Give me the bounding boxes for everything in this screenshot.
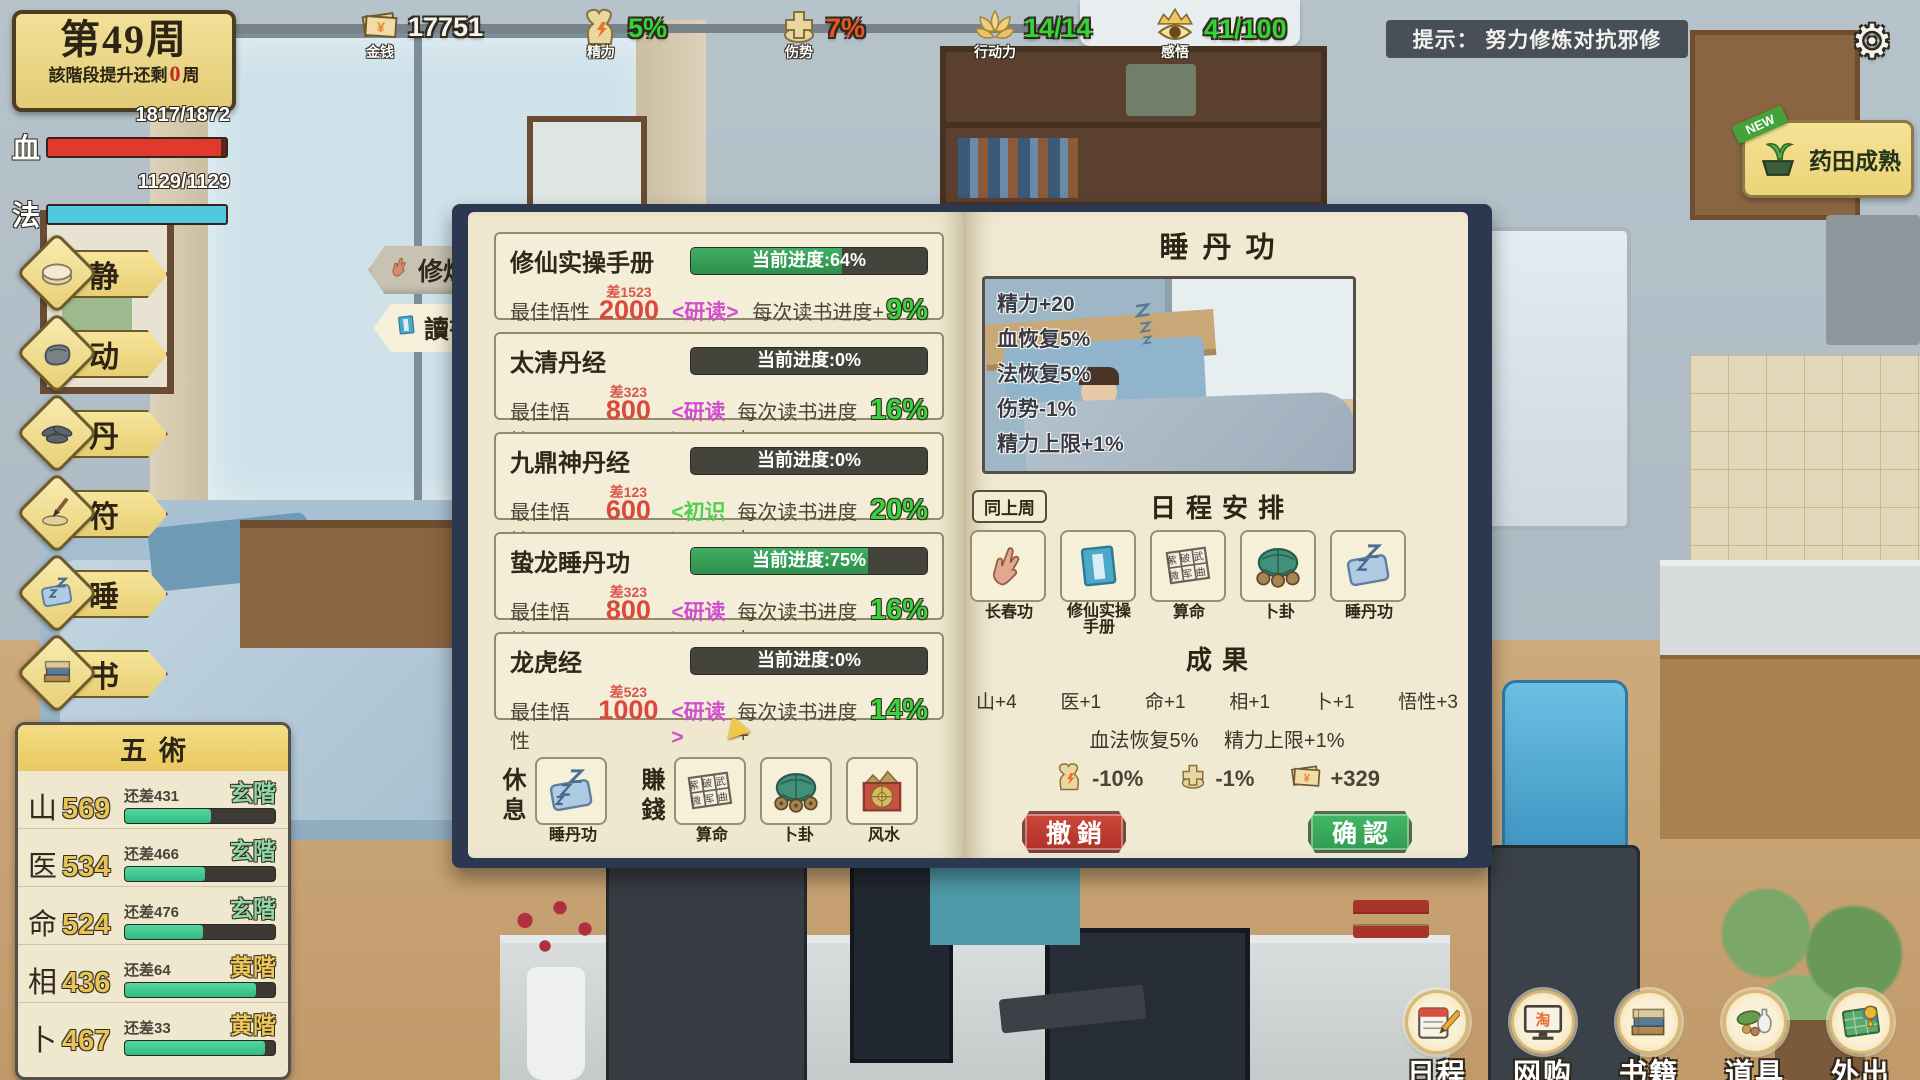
schedule-slot[interactable]: 紫破武微军曲 算命 [1150, 530, 1228, 636]
results-recovery-line: 血法恢复5% 精力上限+1% [966, 724, 1468, 753]
five-arts-bar [124, 808, 276, 824]
bg-water-bottle [1502, 680, 1628, 854]
five-arts-row-yi: 医 534 还差466 玄階 [18, 829, 288, 887]
nav-items[interactable]: 道具 [1716, 990, 1794, 1080]
aptitude-diff: 差123 [610, 482, 647, 502]
five-arts-row-bu: 卜 467 还差33 黄階 [18, 1003, 288, 1060]
five-arts-bar [124, 1040, 276, 1056]
activity-title: 睡丹功 [966, 224, 1468, 266]
bg-hood [1826, 215, 1920, 345]
bg-chair [930, 855, 1080, 945]
herb-icon [16, 392, 98, 474]
results-title: 成果 [966, 640, 1468, 677]
gain-value: 16% [870, 599, 928, 621]
book-icon [1060, 530, 1136, 602]
sidebar-item-dan[interactable]: 丹 [24, 402, 174, 460]
book-progress-bar: 当前进度:0% [690, 447, 928, 475]
books-icon [1617, 990, 1681, 1054]
aptitude-label: 最佳悟性 [510, 696, 589, 754]
read-mode-toggle[interactable]: <研读> [672, 296, 739, 326]
nav-schedule[interactable]: 日程 [1398, 990, 1476, 1080]
sidebar-item-fu[interactable]: 符 [24, 482, 174, 540]
pillow-icon [1330, 530, 1406, 602]
mp-value: 1129/1129 [54, 171, 230, 194]
compass-icon [846, 757, 918, 825]
gain-value: 9% [886, 299, 928, 321]
schedule-slot[interactable]: 卜卦 [1240, 530, 1318, 636]
schedule-slot[interactable]: 睡丹功 [1330, 530, 1408, 636]
resource-action: 行动力 14/14 [972, 6, 1092, 51]
gain-value: 14% [870, 699, 928, 721]
resource-money: ¥ 金钱 17751 [358, 6, 483, 49]
rest-label: 休息 [494, 767, 529, 827]
week-remaining: 該階段提升还剩0周 [16, 64, 232, 86]
book-entry[interactable]: 修仙实操手册 当前进度:64% 最佳悟性 差1523 2000 <研读> 每次读… [494, 232, 944, 320]
game-screen: 第49周 該階段提升还剩0周 ¥ 金钱 17751 精力 5% 伤势 7% 行动… [0, 0, 1920, 1080]
settings-button[interactable]: ⚙ [1843, 12, 1901, 70]
vitals-panel: 1817/1872 血 1129/1129 法 [12, 104, 242, 234]
activity-effects: 精力+20 血恢复5% 法恢复5% 伤势-1% 精力上限+1% [997, 287, 1124, 462]
energy-icon: 精力 [580, 6, 622, 51]
fortune-paper-icon: 紫破武微军曲 [674, 757, 746, 825]
bg-fridge [1481, 227, 1631, 530]
nav-go-out[interactable]: 外出 [1822, 990, 1900, 1080]
cost-energy: -10% [1054, 761, 1143, 797]
sidebar-item-jing[interactable]: 静 [24, 242, 174, 300]
farm-icon [1755, 135, 1801, 184]
resource-energy: 精力 5% [580, 6, 667, 51]
book-progress-bar: 当前进度:0% [690, 647, 928, 675]
sidebar-item-shui[interactable]: 睡 [24, 562, 174, 620]
book-progress-bar: 当前进度:75% [690, 547, 928, 575]
money-icon: ¥ [1288, 761, 1324, 797]
five-arts-bar [124, 924, 276, 940]
schedule-slot[interactable]: 修仙实操手册 [1060, 530, 1138, 636]
book-entry[interactable]: 龙虎经 当前进度:0% 最佳悟性 差523 1000 <研读> 每次读书进度+ … [494, 632, 944, 720]
bg-flowers [505, 895, 605, 980]
earn-label: 賺錢 [633, 767, 668, 827]
week-plaque: 第49周 該階段提升还剩0周 [12, 10, 236, 112]
book-right-page: 睡丹功 精力+20 血恢复5% 法恢复5% 伤势-1% 精力上限+1% [966, 212, 1468, 858]
bg-counter [1660, 560, 1920, 661]
map-icon [1829, 990, 1893, 1054]
side-menu: 静 动 丹 符 睡 书 [24, 242, 174, 700]
insight-value: 41/100 [1204, 14, 1287, 45]
undo-button[interactable]: 撤銷 [1022, 811, 1126, 853]
bottom-nav: 日程 淘 网购 书籍 道具 外出 [1398, 990, 1900, 1080]
svg-text:淘: 淘 [1536, 1011, 1551, 1029]
action-icon: 行动力 [972, 6, 1018, 51]
action-value: 14/14 [1024, 13, 1092, 44]
book-entry[interactable]: 九鼎神丹经 当前进度:0% 最佳悟性 差123 600 <初识> 每次读书进度+… [494, 432, 944, 520]
mp-label: 法 [12, 194, 40, 234]
five-arts-row-shan: 山 569 还差431 玄階 [18, 771, 288, 829]
schedule-header: 同上周 日程安排 [966, 488, 1468, 522]
same-as-last-week-button[interactable]: 同上周 [972, 490, 1047, 523]
book-progress-bar: 当前进度:64% [690, 247, 928, 275]
five-arts-row-ming: 命 524 还差476 玄階 [18, 887, 288, 945]
book-panel: 修仙实操手册 当前进度:64% 最佳悟性 差1523 2000 <研读> 每次读… [452, 204, 1492, 868]
gain-label: 每次读书进度+ [737, 696, 868, 748]
five-arts-row-xiang: 相 436 还差64 黄階 [18, 945, 288, 1003]
money-label: 金钱 [366, 42, 394, 62]
five-arts-panel: 五術 山 569 还差431 玄階 医 534 还差466 玄階 命 524 [15, 722, 291, 1080]
injury-icon: 伤势 [778, 6, 820, 51]
hand-icon [388, 255, 412, 286]
gain-value: 16% [870, 399, 928, 421]
book-entry[interactable]: 太清丹经 当前进度:0% 最佳悟性 差323 800 <研读> 每次读书进度+ … [494, 332, 944, 420]
bg-kitchen-tiles [1690, 355, 1920, 565]
hp-bar [46, 137, 228, 158]
tip-text: 提示： 努力修炼对抗邪修 [1413, 24, 1662, 54]
injury-label: 伤势 [785, 42, 813, 62]
cost-money: ¥ +329 [1288, 761, 1380, 797]
pillow-icon [535, 757, 607, 825]
fortune-paper-icon: 紫破武微军曲 [1150, 530, 1226, 602]
gain-value: 20% [870, 499, 928, 521]
bg-vase [527, 967, 585, 1080]
hp-label: 血 [12, 127, 40, 167]
week-title: 第49周 [16, 16, 232, 64]
items-icon [1723, 990, 1787, 1054]
action-card-sleep[interactable]: 睡丹功 [535, 757, 611, 844]
bg-cabinet [1660, 655, 1920, 839]
nav-books[interactable]: 书籍 [1610, 990, 1688, 1080]
book-list: 修仙实操手册 当前进度:64% 最佳悟性 差1523 2000 <研读> 每次读… [494, 232, 944, 720]
five-arts-title: 五術 [18, 725, 288, 771]
shop-monitor-icon: 淘 [1511, 990, 1575, 1054]
activity-illustration: 精力+20 血恢复5% 法恢复5% 伤势-1% 精力上限+1% [982, 276, 1356, 474]
money-icon: ¥ 金钱 [358, 6, 402, 49]
hp-value: 1817/1872 [54, 104, 230, 127]
book-progress-bar: 当前进度:0% [690, 347, 928, 375]
insight-label: 感悟 [1161, 42, 1189, 62]
turtle-icon [1240, 530, 1316, 602]
results-stats: 山+4 医+1 命+1 相+1 卜+1 悟性+3 [966, 687, 1468, 714]
action-card-fengshui[interactable]: 风水 [846, 757, 922, 844]
bg-red-books [1353, 900, 1429, 938]
bag-icon [16, 312, 98, 394]
left-action-row: 休息 睡丹功 賺錢 紫破武微军曲 算命 [494, 757, 954, 844]
book-left-page: 修仙实操手册 当前进度:64% 最佳悟性 差1523 2000 <研读> 每次读… [468, 212, 966, 858]
confirm-row: 撤銷 确認 [966, 811, 1468, 853]
energy-icon [1054, 761, 1086, 797]
book-name: 太清丹经 [510, 343, 606, 378]
hand-icon [970, 530, 1046, 602]
weeks-remaining-value: 0 [168, 61, 183, 86]
money-value: 17751 [408, 12, 483, 43]
cushion-icon [16, 232, 98, 314]
book-name: 龙虎经 [510, 643, 582, 678]
book-icon [394, 313, 418, 344]
aptitude-diff: 差523 [610, 682, 647, 702]
resource-insight: 感悟 41/100 [1152, 6, 1287, 53]
farm-ripe-alert[interactable]: NEW 药田成熟 [1742, 120, 1914, 198]
farm-alert-label: 药田成熟 [1809, 142, 1901, 176]
action-label: 行动力 [974, 42, 1016, 62]
book-name: 蛰龙睡丹功 [510, 543, 630, 578]
five-arts-bar [124, 866, 276, 882]
book-name: 修仙实操手册 [510, 243, 654, 278]
schedule-slots: 长春功 修仙实操手册 紫破武微军曲 算命 [970, 530, 1468, 636]
book-name: 九鼎神丹经 [510, 443, 630, 478]
aptitude-label: 最佳悟性 [510, 296, 590, 325]
turtle-icon [760, 757, 832, 825]
bg-nightstand [240, 520, 460, 648]
action-card-divination[interactable]: 卜卦 [760, 757, 836, 844]
sidebar-item-shu[interactable]: 书 [24, 642, 174, 700]
book-entry[interactable]: 蛰龙睡丹功 当前进度:75% 最佳悟性 差323 800 <研读> 每次读书进度… [494, 532, 944, 620]
confirm-button[interactable]: 确認 [1308, 811, 1412, 853]
aptitude-diff: 差323 [610, 382, 647, 402]
energy-label: 精力 [587, 42, 615, 62]
results-costs: -10% -1% ¥ +329 [966, 761, 1468, 797]
aptitude-diff: 差323 [610, 582, 647, 602]
schedule-slot[interactable]: 长春功 [970, 530, 1048, 636]
tip-banner: 提示： 努力修炼对抗邪修 [1386, 20, 1688, 58]
action-card-fortune[interactable]: 紫破武微军曲 算命 [674, 757, 750, 844]
pillow-icon [16, 552, 98, 634]
energy-value: 5% [628, 13, 667, 44]
five-arts-bar [124, 982, 276, 998]
svg-text:¥: ¥ [376, 19, 385, 36]
calendar-icon [1405, 990, 1469, 1054]
injury-icon [1177, 761, 1209, 797]
gear-icon: ⚙ [1851, 14, 1892, 68]
cost-injury: -1% [1177, 761, 1254, 797]
insight-icon: 感悟 [1152, 6, 1198, 53]
resource-injury: 伤势 7% [778, 6, 865, 51]
aptitude-diff: 差1523 [606, 282, 651, 302]
gain-label: 每次读书进度+ [752, 296, 884, 325]
sidebar-item-dong[interactable]: 动 [24, 322, 174, 380]
bg-pc-tower [606, 845, 807, 1080]
mp-bar [46, 204, 228, 225]
brush-icon [16, 472, 98, 554]
nav-shop[interactable]: 淘 网购 [1504, 990, 1582, 1080]
injury-value: 7% [826, 13, 865, 44]
